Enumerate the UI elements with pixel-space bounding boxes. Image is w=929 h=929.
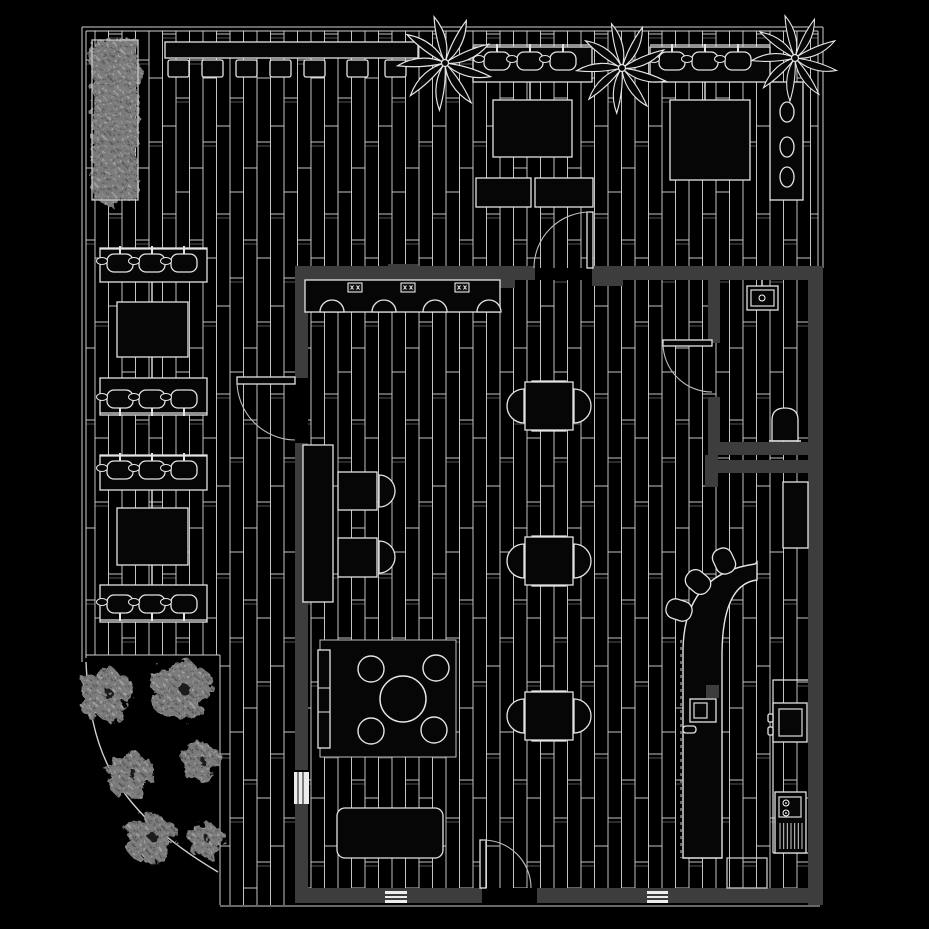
stool — [550, 52, 576, 70]
kitchen-sink-basin — [779, 797, 801, 817]
hedge-foliage — [96, 178, 124, 206]
stool — [780, 167, 794, 187]
wall-segment — [537, 888, 808, 903]
tree-canopy — [150, 659, 212, 721]
table — [493, 100, 572, 157]
coffee-machine-front — [694, 703, 707, 718]
door-leaf — [663, 340, 712, 346]
appliance-mark — [348, 283, 362, 292]
door-leaf — [480, 840, 486, 888]
bench — [165, 42, 418, 58]
table — [670, 100, 750, 180]
tree-core — [128, 770, 136, 778]
small-plate — [161, 599, 172, 606]
tree-core — [204, 836, 210, 842]
wall-segment — [708, 280, 720, 343]
hedge-foliage — [92, 87, 120, 115]
palm-center — [442, 60, 449, 67]
seat-cushion — [168, 60, 189, 77]
seat-cushion — [304, 60, 325, 77]
table — [476, 178, 531, 207]
appliance-block — [706, 685, 719, 698]
small-plate — [161, 465, 172, 472]
table — [117, 508, 188, 565]
small-plate — [682, 56, 693, 63]
seat-cushion — [347, 60, 368, 77]
stool — [659, 52, 685, 70]
stool — [484, 52, 510, 70]
tree-foliage — [186, 753, 209, 776]
small-plate — [715, 56, 726, 63]
small-plate — [129, 258, 140, 265]
small-plate — [97, 465, 108, 472]
hedge-foliage — [113, 114, 141, 142]
lounge-stool — [358, 656, 384, 682]
plank-floor — [220, 655, 295, 905]
wall-segment — [500, 266, 515, 288]
kitchen-stove-top — [779, 709, 802, 736]
lounge-stool — [421, 717, 447, 743]
stool — [692, 52, 718, 70]
console-shelf — [318, 650, 330, 748]
dining-table — [525, 382, 573, 430]
sink-tap-dot — [785, 812, 787, 814]
small-plate — [161, 394, 172, 401]
tree-foliage — [159, 676, 194, 711]
stool — [725, 52, 751, 70]
handle — [683, 726, 696, 733]
hedge-foliage — [90, 138, 118, 166]
sink-tap-dot — [785, 802, 787, 804]
small-plate — [97, 258, 108, 265]
tree-core — [199, 757, 206, 764]
stool — [171, 461, 197, 479]
stool — [780, 137, 794, 157]
small-plate — [161, 258, 172, 265]
tree-canopy — [107, 751, 155, 799]
table — [117, 302, 188, 357]
wall-segment — [808, 266, 823, 905]
lounge-stool — [358, 718, 384, 744]
door-leaf — [587, 212, 593, 268]
hedge-planter — [87, 40, 143, 206]
dining-table — [525, 537, 573, 585]
sofa — [337, 808, 443, 858]
bench — [303, 445, 333, 602]
kitchen-cabinet — [783, 482, 808, 548]
wall-segment — [708, 442, 808, 455]
tree-core — [148, 832, 157, 841]
tree-foliage — [86, 683, 117, 714]
tree-canopy — [181, 742, 221, 782]
seat-cushion — [236, 60, 257, 77]
table — [535, 178, 593, 207]
seat-cushion — [270, 60, 291, 77]
table — [338, 472, 377, 510]
tree-canopy — [126, 812, 177, 863]
stool — [171, 390, 197, 408]
floor-plan-canvas — [0, 0, 929, 929]
lounge-stool — [423, 655, 449, 681]
palm-center — [619, 65, 626, 72]
wall-vent — [385, 891, 407, 903]
dining-table — [525, 692, 573, 740]
wall-segment — [718, 460, 808, 473]
bathroom-sink-basin — [751, 290, 774, 306]
small-plate — [540, 56, 551, 63]
seat-cushion — [202, 60, 223, 77]
wall-vent — [647, 891, 668, 903]
floor-plan-page — [0, 0, 929, 929]
door-leaf — [237, 377, 295, 384]
small-plate — [129, 465, 140, 472]
stool — [517, 52, 543, 70]
small-plate — [97, 599, 108, 606]
small-plate — [129, 599, 140, 606]
appliance-mark — [455, 283, 469, 292]
appliance-mark — [401, 283, 415, 292]
small-plate — [507, 56, 518, 63]
small-plate — [97, 394, 108, 401]
wall-segment — [708, 397, 720, 442]
stool — [171, 254, 197, 272]
tree-foliage — [193, 832, 214, 853]
window — [294, 772, 309, 804]
wall-segment — [708, 266, 823, 280]
lounge-table — [380, 676, 426, 722]
tree-foliage — [114, 765, 141, 792]
stove-knob — [768, 727, 773, 735]
small-plate — [129, 394, 140, 401]
table — [338, 538, 377, 577]
tree-canopy — [188, 822, 225, 859]
palm-center — [792, 55, 799, 62]
tree-core — [103, 689, 113, 699]
toilet — [772, 408, 798, 441]
tree-core — [178, 683, 189, 694]
stool — [780, 102, 794, 122]
stove-knob — [768, 714, 773, 722]
wall-segment — [705, 455, 718, 487]
wall-segment — [592, 266, 623, 286]
tree-foliage — [133, 827, 162, 856]
stool — [171, 595, 197, 613]
